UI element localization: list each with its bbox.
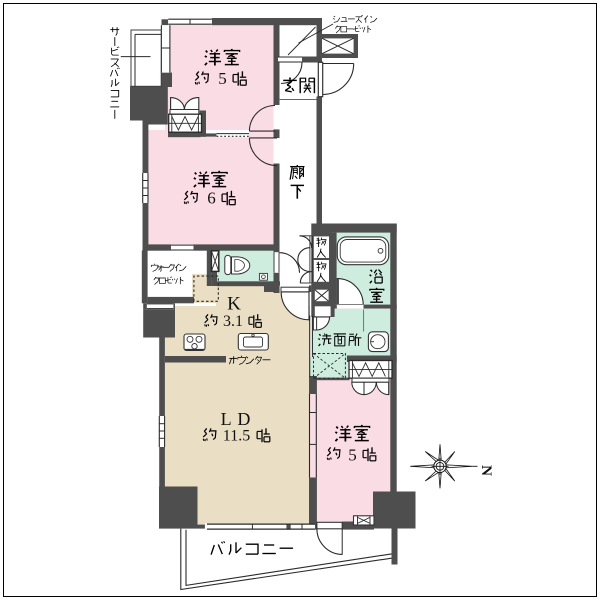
svg-text:L D: L D — [221, 409, 252, 429]
svg-text:K: K — [227, 294, 241, 315]
svg-text:5: 5 — [218, 69, 227, 88]
svg-text:11.5: 11.5 — [223, 428, 250, 445]
svg-text:N: N — [478, 465, 494, 476]
svg-text:6: 6 — [207, 189, 216, 208]
svg-text:5: 5 — [348, 446, 357, 465]
svg-text:3.1: 3.1 — [223, 313, 243, 330]
